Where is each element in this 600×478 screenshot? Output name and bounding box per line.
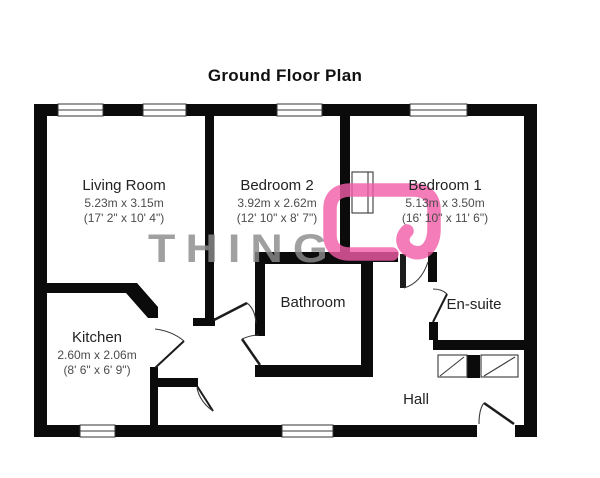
room-label-hall: Hall bbox=[386, 391, 446, 410]
watermark-text: THING bbox=[148, 229, 338, 269]
room-dims-imperial: (16' 10" x 11' 6") bbox=[385, 211, 505, 227]
front-door bbox=[479, 403, 514, 424]
room-label-bathroom: Bathroom bbox=[263, 294, 363, 313]
room-name: Hall bbox=[386, 391, 446, 410]
room-label-bedroom-2: Bedroom 2 3.92m x 2.62m (12' 10" x 8' 7"… bbox=[217, 177, 337, 227]
room-label-living-room: Living Room 5.23m x 3.15m (17' 2" x 10' … bbox=[44, 177, 204, 227]
room-label-kitchen: Kitchen 2.60m x 2.06m (8' 6" x 6' 9") bbox=[37, 329, 157, 379]
room-dims-metric: 5.13m x 3.50m bbox=[385, 196, 505, 212]
kitchen-door bbox=[155, 329, 213, 411]
room-name: Kitchen bbox=[37, 329, 157, 348]
bedroom2-door bbox=[214, 303, 256, 323]
window bbox=[410, 104, 467, 116]
room-name: Bathroom bbox=[263, 294, 363, 313]
room-label-bedroom-1: Bedroom 1 5.13m x 3.50m (16' 10" x 11' 6… bbox=[385, 177, 505, 227]
window bbox=[143, 104, 186, 116]
room-dims-metric: 5.23m x 3.15m bbox=[44, 196, 204, 212]
room-name: Living Room bbox=[44, 177, 204, 196]
room-dims-imperial: (12' 10" x 8' 7") bbox=[217, 211, 337, 227]
room-label-en-suite: En-suite bbox=[424, 296, 524, 315]
room-dims-metric: 3.92m x 2.62m bbox=[217, 196, 337, 212]
window bbox=[277, 104, 322, 116]
room-name: Bedroom 1 bbox=[385, 177, 505, 196]
window bbox=[58, 104, 103, 116]
front-door-opening bbox=[477, 424, 515, 438]
bathroom-door bbox=[242, 335, 260, 365]
room-name: En-suite bbox=[424, 296, 524, 315]
room-dims-metric: 2.60m x 2.06m bbox=[37, 348, 157, 364]
room-dims-imperial: (8' 6" x 6' 9") bbox=[37, 363, 157, 379]
room-name: Bedroom 2 bbox=[217, 177, 337, 196]
window bbox=[282, 425, 333, 437]
window bbox=[80, 425, 115, 437]
floor-plan-page: Ground Floor Plan bbox=[0, 0, 600, 478]
room-dims-imperial: (17' 2" x 10' 4") bbox=[44, 211, 204, 227]
